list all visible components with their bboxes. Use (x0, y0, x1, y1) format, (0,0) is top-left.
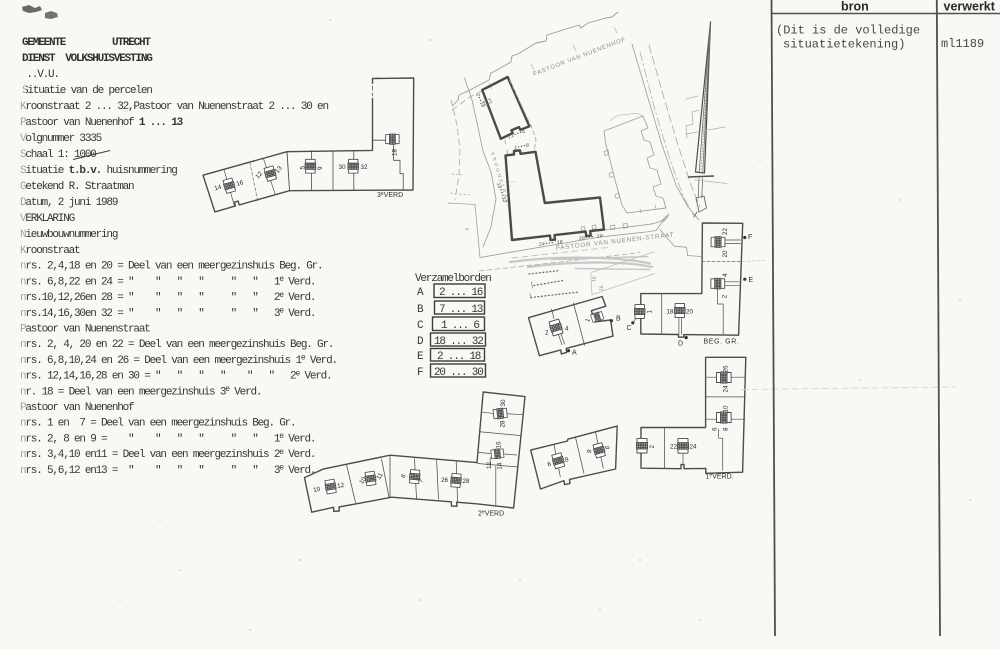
svg-text:Kroonstraat: Kroonstraat (20, 245, 80, 257)
svg-text:PASTOOR VAN NUENENHOF: PASTOOR VAN NUENENHOF (533, 37, 627, 78)
svg-text:(Dit is de volledige: (Dit is de volledige (776, 24, 920, 38)
svg-text:Datum, 2 juni 1989: Datum, 2 juni 1989 (20, 197, 118, 209)
svg-text:16: 16 (591, 276, 598, 283)
svg-text:Kroonstraat 2 ... 32,Pastoor v: Kroonstraat 2 ... 32,Pastoor van Nuenens… (20, 101, 328, 113)
svg-text:BEG. GR.: BEG. GR. (704, 339, 740, 346)
svg-text:nr. 18 = Deel van een meergezi: nr. 18 = Deel van een meergezinshuis 3e … (20, 385, 261, 398)
svg-text:nrs. 2,4,18 en 20 = Deel van e: nrs. 2,4,18 en 20 = Deel van een meergez… (20, 261, 322, 273)
svg-text:A: A (572, 350, 577, 357)
svg-text:nrs. 6,8,10,24 en 26 = Deel va: nrs. 6,8,10,24 en 26 = Deel van een meer… (20, 354, 337, 367)
svg-text:6: 6 (712, 427, 719, 431)
svg-text:..V.U.: ..V.U. (21, 69, 59, 81)
svg-text:9: 9 (586, 448, 594, 454)
svg-text:9: 9 (463, 227, 469, 231)
svg-text:Nieuwbouwnummering: Nieuwbouwnummering (20, 229, 118, 241)
svg-text:18 ... 32: 18 ... 32 (434, 336, 483, 348)
svg-text:4: 4 (565, 326, 569, 333)
svg-text:(1•••6: (1•••6 (507, 129, 526, 141)
svg-text:Schaal 1: 1000: Schaal 1: 1000 (20, 149, 96, 161)
svg-text:F: F (748, 234, 752, 241)
svg-text:2: 2 (649, 445, 656, 449)
svg-text:D: D (417, 336, 424, 348)
svg-text:C: C (627, 325, 632, 332)
svg-text:F: F (417, 367, 423, 379)
svg-text:6: 6 (400, 472, 408, 479)
svg-text:4: 4 (722, 273, 729, 277)
svg-text:24: 24 (723, 385, 730, 393)
svg-text:nrs.10,12,26en 28 = " " ": nrs.10,12,26en 28 = " " " " " " 2e Verd. (20, 291, 315, 304)
svg-text:Getekend R. Straatman: Getekend R. Straatman (20, 181, 134, 193)
svg-text:nrs. 12,14,16,28 en 30 = " ": nrs. 12,14,16,28 en 30 = " " " " " " 2e … (20, 369, 332, 382)
svg-text:8: 8 (564, 456, 570, 464)
svg-text:verwerkt: verwerkt (944, 0, 996, 14)
svg-text:nrs.14,16,30en 32 = " " ": nrs.14,16,30en 32 = " " " " " " 3e Verd. (20, 307, 315, 320)
svg-text:1eVERD.: 1eVERD. (706, 473, 734, 481)
svg-text:9: 9 (317, 166, 324, 170)
svg-text:2: 2 (721, 294, 728, 298)
svg-text:GEMEENTE: GEMEENTE (22, 37, 67, 49)
svg-text:3eVERD: 3eVERD (377, 191, 403, 199)
svg-text:1: 1 (584, 317, 592, 323)
svg-text:12: 12 (254, 170, 264, 180)
svg-text:12: 12 (337, 482, 346, 490)
svg-text:22: 22 (670, 444, 678, 451)
svg-text:nrs. 1 en 7 = Deel van een me: nrs. 1 en 7 = Deel van een meergezinshui… (20, 418, 295, 430)
svg-text:10: 10 (723, 405, 730, 413)
svg-text:nrs. 2, 4, 20 en 22 = Deel van: nrs. 2, 4, 20 en 22 = Deel van een meerg… (20, 339, 333, 351)
svg-text:D: D (678, 341, 683, 348)
svg-text:B: B (417, 304, 424, 316)
svg-text:B: B (616, 316, 621, 323)
svg-text:16: 16 (496, 441, 503, 449)
svg-text:2eVERD: 2eVERD (478, 510, 504, 518)
svg-text:DIENST VOLKSHUISVESTING: DIENST VOLKSHUISVESTING (22, 53, 153, 65)
svg-text:nrs. 5,6,12 en13 = " " ": nrs. 5,6,12 en13 = " " " " " " 3e Verd. (20, 464, 315, 477)
svg-text:Situatie van de percelen: Situatie van de percelen (22, 85, 152, 97)
svg-text:28: 28 (499, 420, 506, 428)
svg-text:2 ... 18: 2 ... 18 (437, 351, 481, 363)
svg-text:Pastoor van Nuenenhof 1 ... 13: Pastoor van Nuenenhof 1 ... 13 (20, 117, 184, 129)
svg-text:18: 18 (392, 148, 399, 156)
svg-text:bron: bron (841, 0, 869, 14)
svg-text:nrs. 2, 8 en 9 = " " ": nrs. 2, 8 en 9 = " " " " " " 1e Verd. (20, 432, 315, 445)
svg-text:26: 26 (441, 477, 449, 484)
svg-text:E: E (749, 277, 754, 284)
svg-text:32: 32 (361, 164, 369, 171)
svg-text:10: 10 (313, 486, 322, 494)
svg-text:Situatie t.b.v. huisnummering: Situatie t.b.v. huisnummering (20, 165, 177, 177)
svg-text:2 ... 16: 2 ... 16 (439, 287, 483, 299)
svg-text:Pastoor van Nuenenstraat: Pastoor van Nuenenstraat (20, 324, 150, 336)
svg-text:8: 8 (722, 427, 729, 431)
svg-text:20: 20 (686, 309, 694, 316)
svg-text:14: 14 (214, 184, 223, 193)
svg-text:30: 30 (339, 164, 347, 171)
svg-text:22: 22 (722, 227, 729, 235)
svg-text:C: C (417, 320, 424, 332)
svg-text:Verzamelborden: Verzamelborden (415, 273, 491, 285)
svg-text:UTRECHT: UTRECHT (112, 37, 151, 49)
svg-text:11: 11 (375, 471, 385, 481)
svg-text:nrs. 6,8,22 en 24 = " " ": nrs. 6,8,22 en 24 = " " " " " " 1e Verd. (20, 275, 315, 288)
svg-text:18: 18 (667, 309, 675, 316)
svg-text:20: 20 (722, 250, 729, 258)
svg-text:28: 28 (463, 478, 471, 485)
svg-text:6: 6 (604, 445, 612, 451)
svg-text:20 ... 30: 20 ... 30 (434, 367, 483, 379)
svg-text:Volgnummer 3335: Volgnummer 3335 (20, 133, 102, 145)
svg-text:12: 12 (486, 461, 493, 469)
svg-text:5: 5 (300, 166, 307, 170)
svg-text:26: 26 (723, 365, 730, 373)
svg-text:nrs. 3,4,10 en11 = Deel van ee: nrs. 3,4,10 en11 = Deel van een meergezi… (20, 448, 315, 461)
svg-text:1 ... 6: 1 ... 6 (441, 320, 479, 332)
svg-text:24: 24 (690, 444, 698, 451)
svg-text:30: 30 (500, 399, 507, 407)
svg-text:16: 16 (236, 179, 245, 188)
svg-text:E: E (417, 351, 424, 363)
svg-text:6: 6 (547, 461, 553, 469)
svg-text:A: A (417, 287, 424, 299)
svg-text:15: 15 (598, 285, 605, 292)
svg-text:ml1189: ml1189 (941, 37, 984, 51)
svg-text:VERKLARING: VERKLARING (20, 213, 75, 225)
svg-text:14: 14 (497, 462, 504, 470)
svg-text:situatietekening): situatietekening) (783, 38, 905, 52)
svg-text:7 ... 13: 7 ... 13 (439, 304, 483, 316)
svg-text:Pastoor van Nuenenhof: Pastoor van Nuenenhof (20, 402, 134, 414)
svg-text:2: 2 (545, 330, 549, 337)
svg-text:1: 1 (647, 310, 654, 314)
